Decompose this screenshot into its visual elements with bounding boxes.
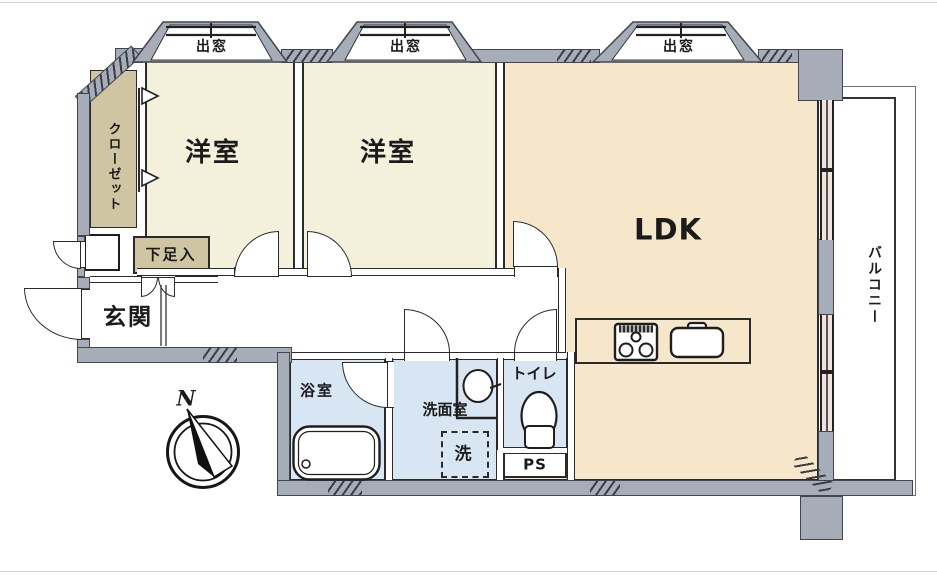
bay-window-label-1: 出窓 <box>196 40 228 54</box>
hatch-top-a <box>286 50 330 62</box>
wall-left-upper <box>77 93 90 236</box>
scan-line-bottom <box>0 571 937 572</box>
door-swing-entrance <box>24 288 82 340</box>
toilet-label: トイレ <box>511 367 556 382</box>
wall-toilet-east <box>567 352 575 480</box>
washroom-label: 洗面室 <box>422 403 467 418</box>
wall-western1-south-a <box>137 268 234 276</box>
hatch-top-b <box>557 50 591 62</box>
hatch-bottom-2 <box>590 481 620 495</box>
compass-north-label: N <box>176 388 197 409</box>
scan-line-top <box>0 2 937 3</box>
door-swing-meter-box <box>53 241 81 269</box>
wall-entrance-north-a <box>90 276 142 283</box>
bay-window-label-2: 出窓 <box>390 40 422 54</box>
pipe-space-label: PS <box>523 458 547 473</box>
wall-entrance-north-b <box>175 276 218 283</box>
compass-icon <box>168 409 239 488</box>
hatch-top-c <box>762 50 792 62</box>
floor-plan: 出窓 出窓 出窓 洋室 洋室 LDK クローゼット 下足入 玄関 浴室 洗面室 … <box>0 0 937 576</box>
wall-hall-north <box>497 268 514 276</box>
meter-box <box>84 234 120 271</box>
wall-wetblock-left <box>277 352 290 496</box>
wall-toilet-ps <box>503 447 567 454</box>
wall-western1-south-b <box>278 268 307 276</box>
wall-bottom-left-band <box>77 347 292 363</box>
hatch-bottom-1 <box>328 481 362 495</box>
hatch-entrance-south <box>203 348 237 362</box>
wall-hall-east <box>558 268 566 358</box>
wall-western2-south <box>351 268 497 276</box>
laundry-label: 洗 <box>455 447 474 464</box>
doorway-ldk <box>514 267 558 277</box>
closet-label: クローゼット <box>107 122 120 212</box>
shoe-cabinet-label: 下足入 <box>145 248 196 263</box>
balcony-floor <box>831 97 896 481</box>
entrance-label: 玄関 <box>103 307 153 330</box>
ldk-label: LDK <box>634 216 702 245</box>
window-lower-divider <box>820 370 834 374</box>
balcony-label: バルコニー <box>867 245 881 325</box>
wall-hall-south-c <box>557 352 566 360</box>
bathroom-label: 浴室 <box>300 384 334 399</box>
wall-right-mid <box>818 239 834 315</box>
wall-corner-top-right <box>798 49 843 101</box>
western-room-2-label: 洋室 <box>360 140 416 166</box>
wall-toilet-west <box>497 358 504 450</box>
window-upper-divider <box>820 168 834 172</box>
western-room-1-label: 洋室 <box>185 140 241 166</box>
bay-window-label-3: 出窓 <box>663 40 695 54</box>
closet-door-track <box>138 88 140 192</box>
wall-hall-south-b <box>450 352 514 360</box>
kitchen-counter <box>575 318 751 364</box>
wall-pillar-bottom-right <box>800 496 843 540</box>
